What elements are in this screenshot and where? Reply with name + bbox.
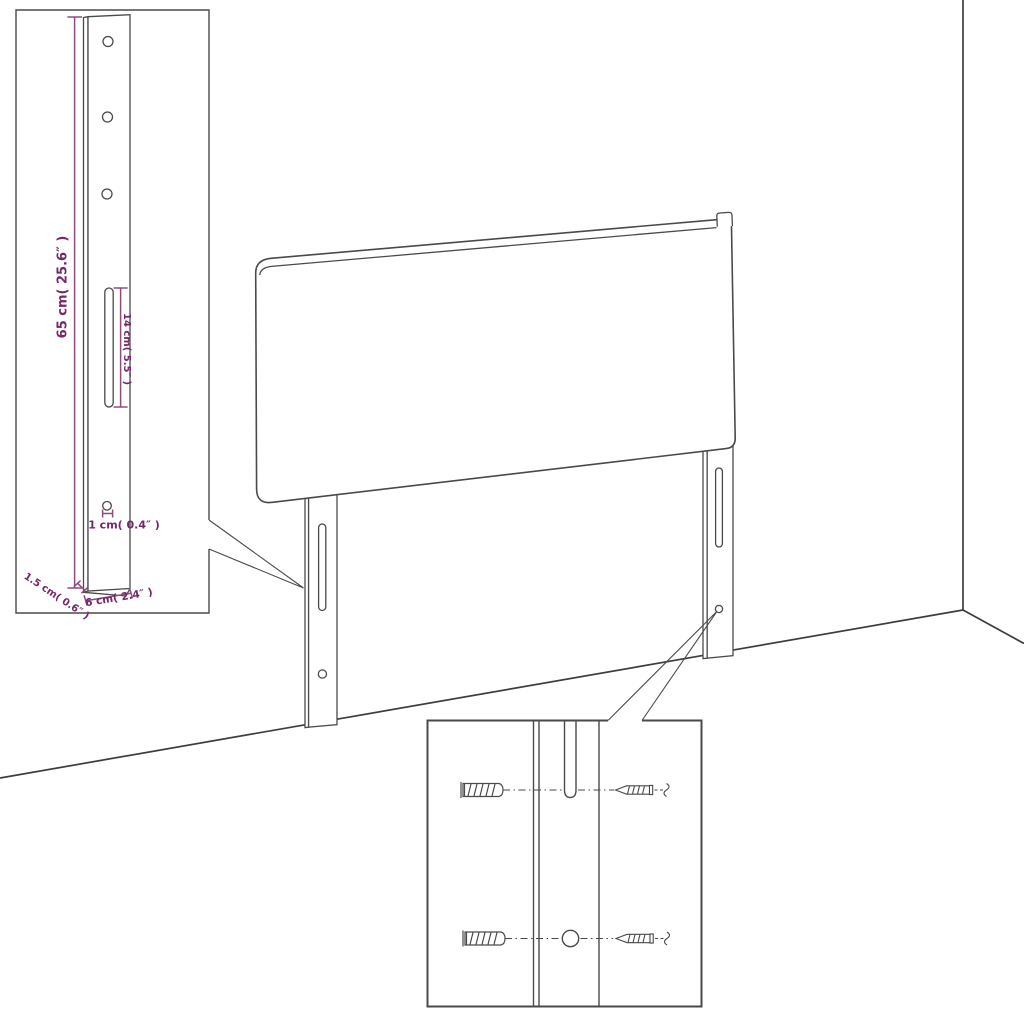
floor-line-right [963, 610, 1024, 644]
headboard-leg-right [703, 443, 733, 659]
small-hole [103, 502, 112, 511]
screw-hole-2 [103, 112, 113, 122]
screw-hole-1 [103, 37, 113, 47]
inset-mounting-detail [428, 721, 702, 1007]
headboard-corner-tab [717, 212, 733, 226]
leg-slot [319, 524, 326, 611]
leg-slot [105, 288, 113, 407]
leg-hole [562, 930, 578, 946]
headboard [256, 212, 736, 502]
callout-lines-mounting-detail [608, 611, 717, 720]
leg-drawing [84, 15, 131, 596]
dimension-label-slot: 14 cm( 5.5″ ) [121, 313, 131, 385]
leg-hole [318, 670, 326, 678]
screw-hole-3 [102, 189, 112, 199]
dimension-label-height: 65 cm( 25.6″ ) [57, 236, 70, 339]
diagram-linework [0, 0, 1024, 1024]
leg-slot [716, 468, 723, 547]
headboard-leg-left [305, 485, 337, 728]
diagram-canvas: 65 cm( 25.6″ ) 14 cm( 5.5″ ) 1 cm( 0.4″ … [0, 0, 1024, 1024]
callout-lines-leg-detail [209, 520, 304, 588]
dimension-label-hole: 1 cm( 0.4″ ) [88, 520, 160, 531]
